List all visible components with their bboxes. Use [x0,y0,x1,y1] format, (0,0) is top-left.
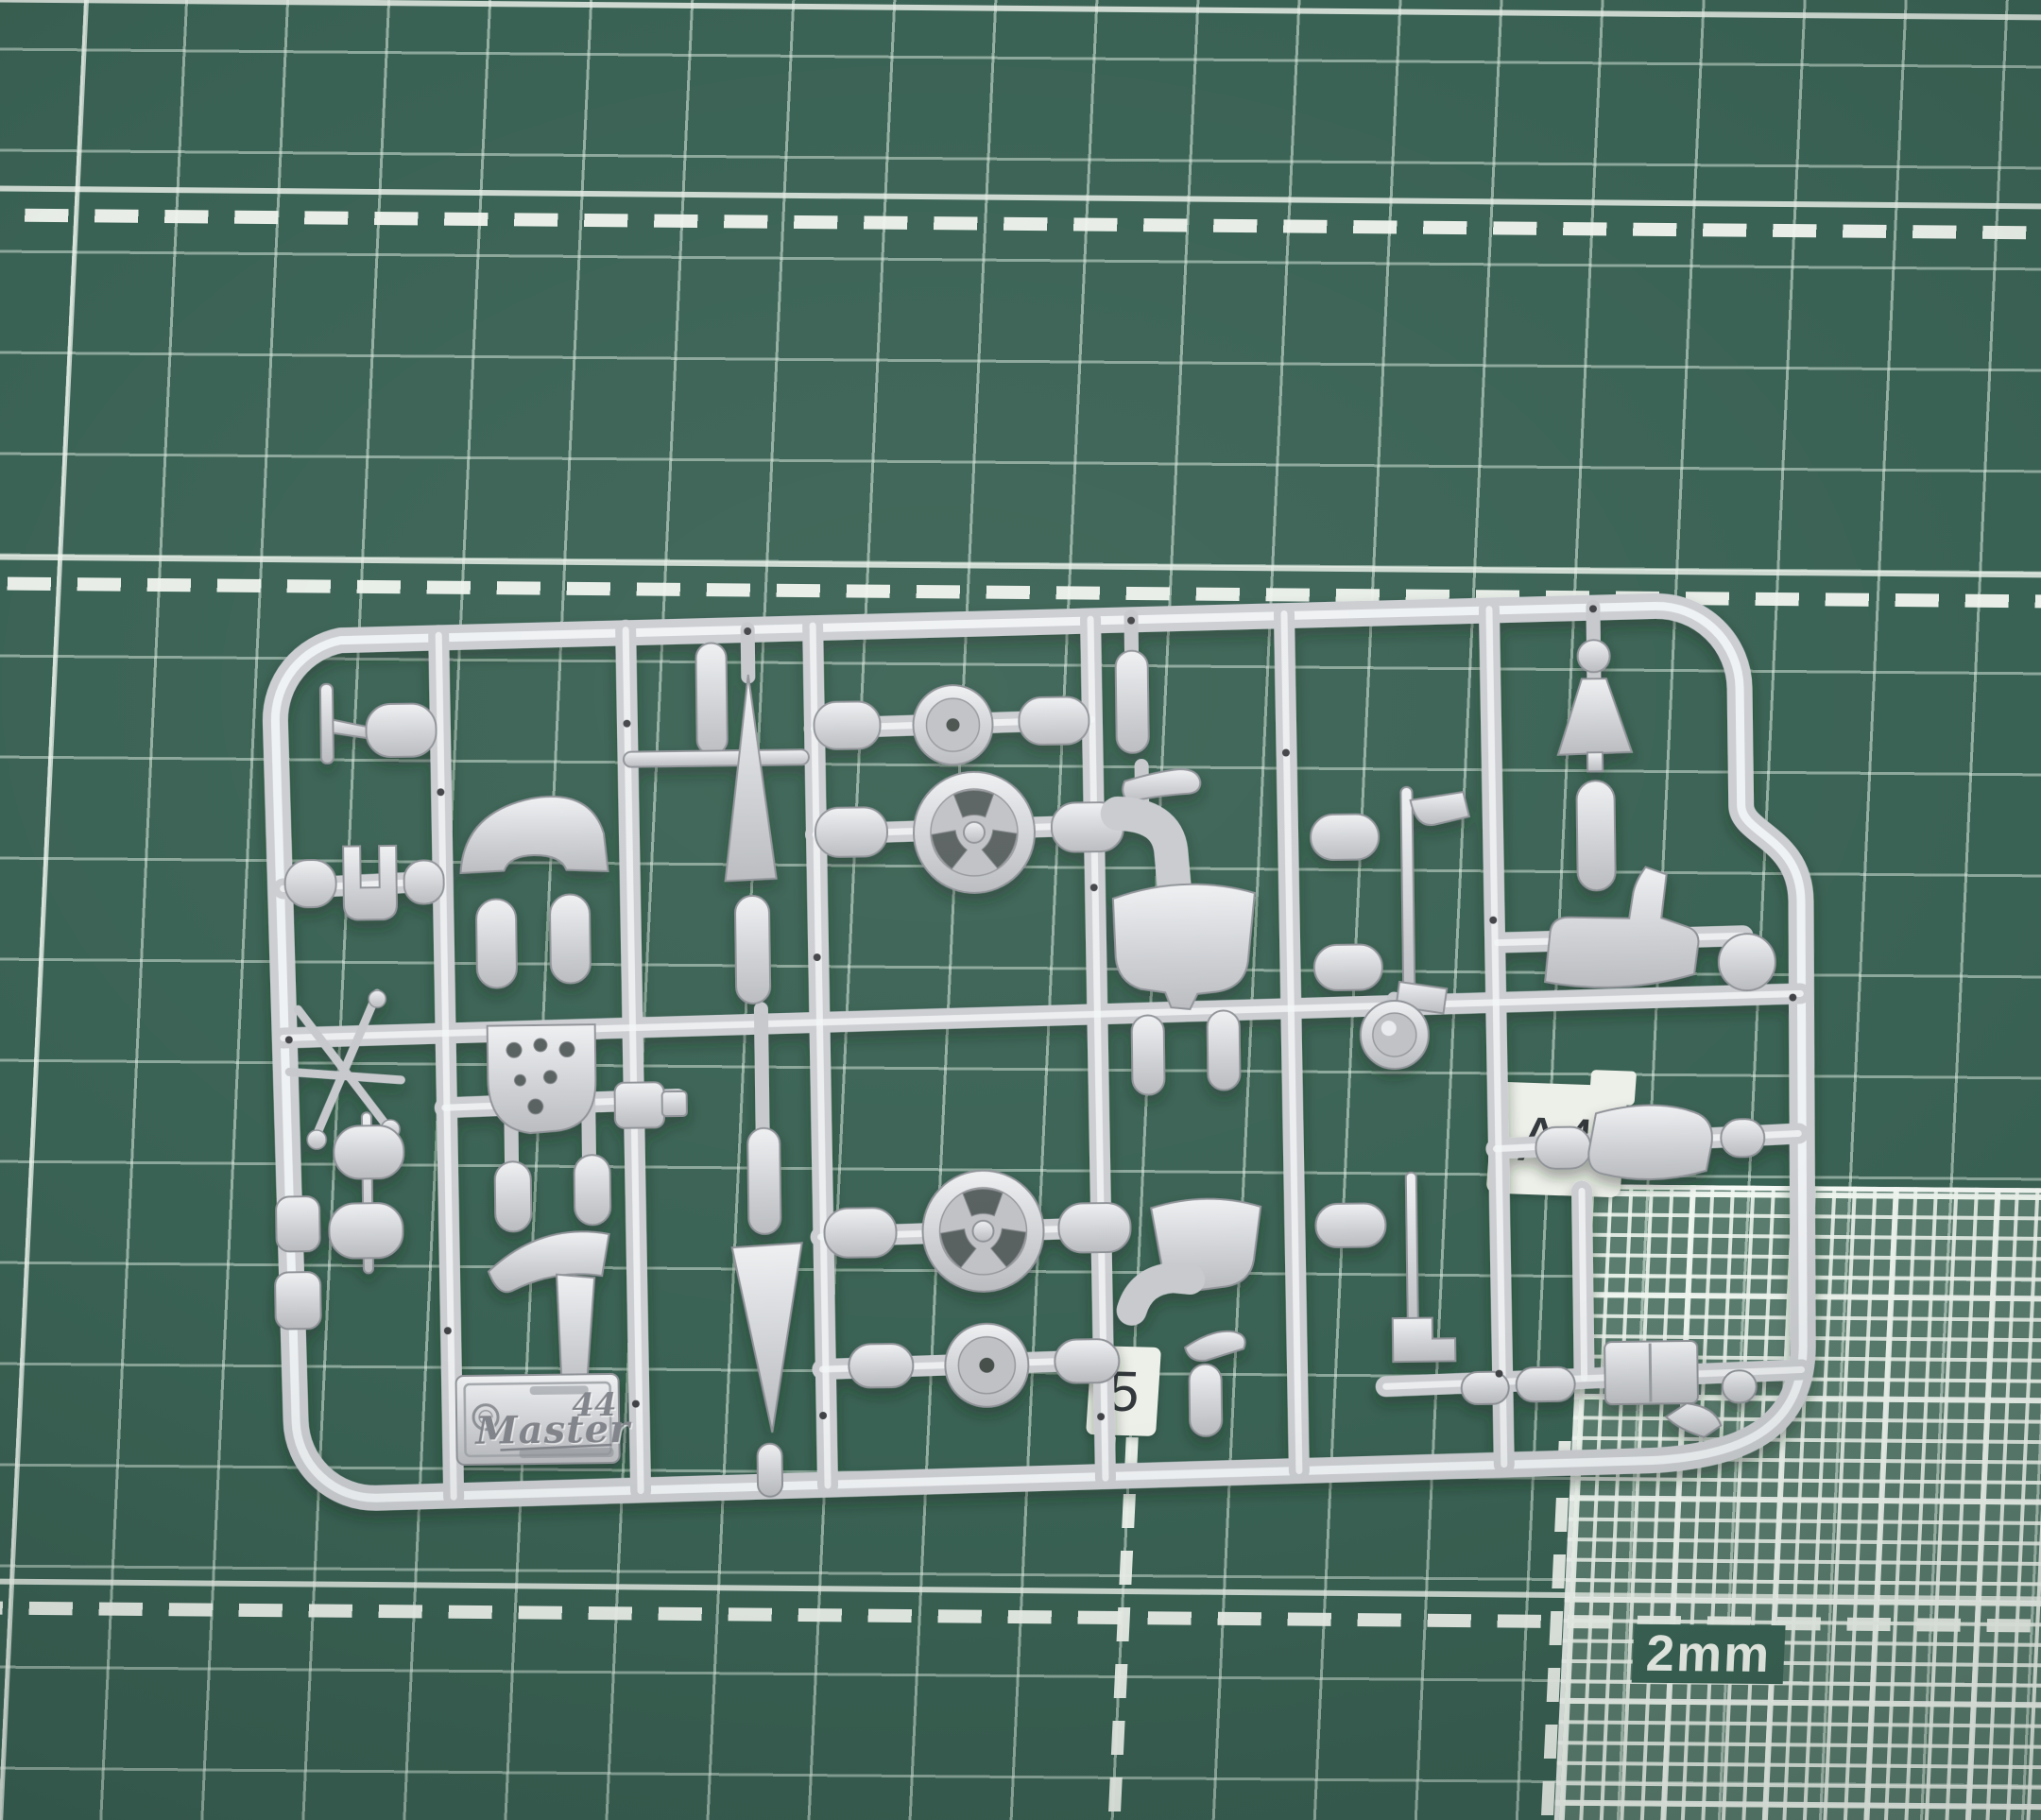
part-hub-disc-upper [814,683,1089,766]
sprue-parts-tree: Master Master 44 44 [0,0,2041,1820]
part-gate-cylinder [1576,781,1616,891]
part-exhaust-hook-upper [1123,769,1201,802]
part-main-wheel-upper [815,770,1124,895]
part-strut-crank-upper [1310,786,1471,1015]
part-exhaust-elbow-lower [1131,1278,1190,1311]
part-main-wheel-lower [824,1169,1132,1294]
part-small-lever [320,682,437,764]
part-gate-sausage [1115,650,1148,752]
part-fairing-blob [1718,934,1775,991]
part-barrel-pair [328,1112,405,1274]
part-spinner-cone-upper [723,675,779,1004]
part-strut-crank-lower [1315,1172,1456,1363]
part-cowling-panel-upper [1113,884,1258,1095]
logo-number-text: 44 [572,1386,617,1425]
logo-plate: Master Master 44 44 [455,1374,633,1465]
part-fuselage-seat-insert [1535,1104,1765,1181]
part-gate-pair-center [494,1155,610,1232]
part-pilot-seat [1544,867,1700,988]
part-filler-stub-t [622,642,809,767]
part-spinner-cone-lower [730,1127,805,1497]
part-spinner-backplate [1360,1001,1429,1070]
part-cowling-arch [459,796,609,988]
photo-scene: 2mm A4 5 [0,0,2041,1820]
part-hub-disc-lower [849,1322,1120,1409]
part-fuel-bottle [1185,1331,1246,1436]
part-windscreen [1556,640,1632,772]
